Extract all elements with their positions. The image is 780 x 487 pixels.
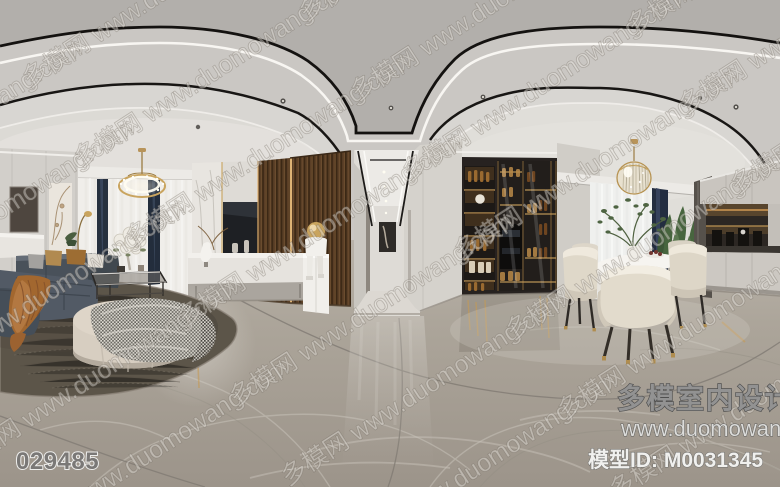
svg-text:模型ID: M0031345: 模型ID: M0031345 xyxy=(588,448,763,472)
svg-text:029485: 029485 xyxy=(16,448,99,475)
svg-text:www.duomowang.com: www.duomowang.com xyxy=(620,416,780,441)
svg-text:多模室内设计: 多模室内设计 xyxy=(617,382,780,414)
